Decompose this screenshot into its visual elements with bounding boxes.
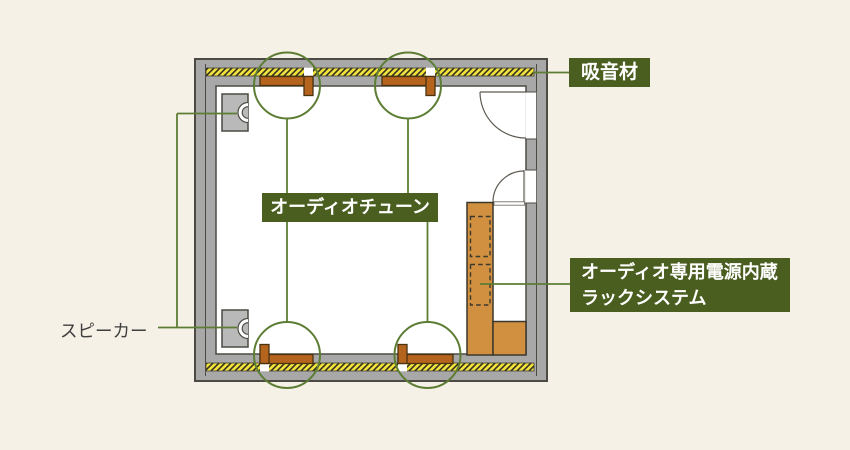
absorber-label: 吸音材 bbox=[569, 58, 650, 87]
rack-label: オーディオ専用電源内蔵 ラックシステム bbox=[570, 258, 790, 312]
speaker-label: スピーカー bbox=[60, 318, 148, 343]
rack-label-line1: オーディオ専用電源内蔵 bbox=[581, 259, 779, 285]
audio-tune-label: オーディオチューン bbox=[262, 193, 438, 222]
audio-room-diagram: 吸音材 オーディオチューン オーディオ専用電源内蔵 ラックシステム スピーカー bbox=[0, 0, 850, 450]
floor-plan bbox=[0, 0, 850, 450]
rack-label-line2: ラックシステム bbox=[581, 285, 779, 311]
